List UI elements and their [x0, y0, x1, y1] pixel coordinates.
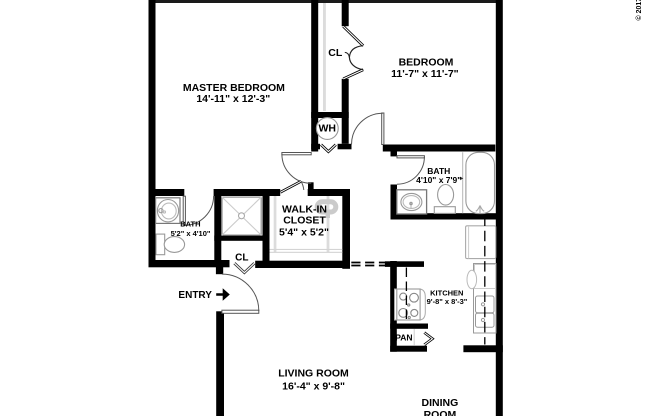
svg-text:DINING: DINING	[422, 397, 459, 409]
svg-text:ENTRY: ENTRY	[178, 290, 212, 301]
svg-text:16'-4" x 9'-8": 16'-4" x 9'-8"	[282, 380, 345, 392]
svg-text:WH: WH	[318, 122, 336, 134]
svg-text:© 2017: © 2017	[635, 0, 643, 21]
svg-text:5'2" x 4'10": 5'2" x 4'10"	[171, 229, 211, 238]
svg-text:MASTER BEDROOM: MASTER BEDROOM	[183, 82, 285, 94]
svg-text:9'-8" x 8'-3": 9'-8" x 8'-3"	[427, 297, 468, 306]
svg-text:WALK-IN: WALK-IN	[282, 203, 327, 215]
svg-text:CLOSET: CLOSET	[283, 215, 326, 227]
svg-text:4'10" x 7'9": 4'10" x 7'9"	[416, 175, 461, 185]
svg-text:PAN: PAN	[395, 332, 412, 342]
svg-text:14'-11" x 12'-3": 14'-11" x 12'-3"	[196, 93, 270, 105]
svg-text:CL: CL	[328, 47, 343, 59]
svg-text:11'-7" x 11'-7": 11'-7" x 11'-7"	[391, 68, 459, 80]
svg-text:BATH: BATH	[180, 220, 200, 229]
svg-text:LIVING ROOM: LIVING ROOM	[278, 368, 349, 380]
svg-text:5'4" x 5'2": 5'4" x 5'2"	[279, 226, 329, 238]
svg-text:BEDROOM: BEDROOM	[399, 56, 454, 68]
svg-text:ROOM: ROOM	[424, 409, 457, 416]
svg-text:CL: CL	[235, 252, 248, 263]
